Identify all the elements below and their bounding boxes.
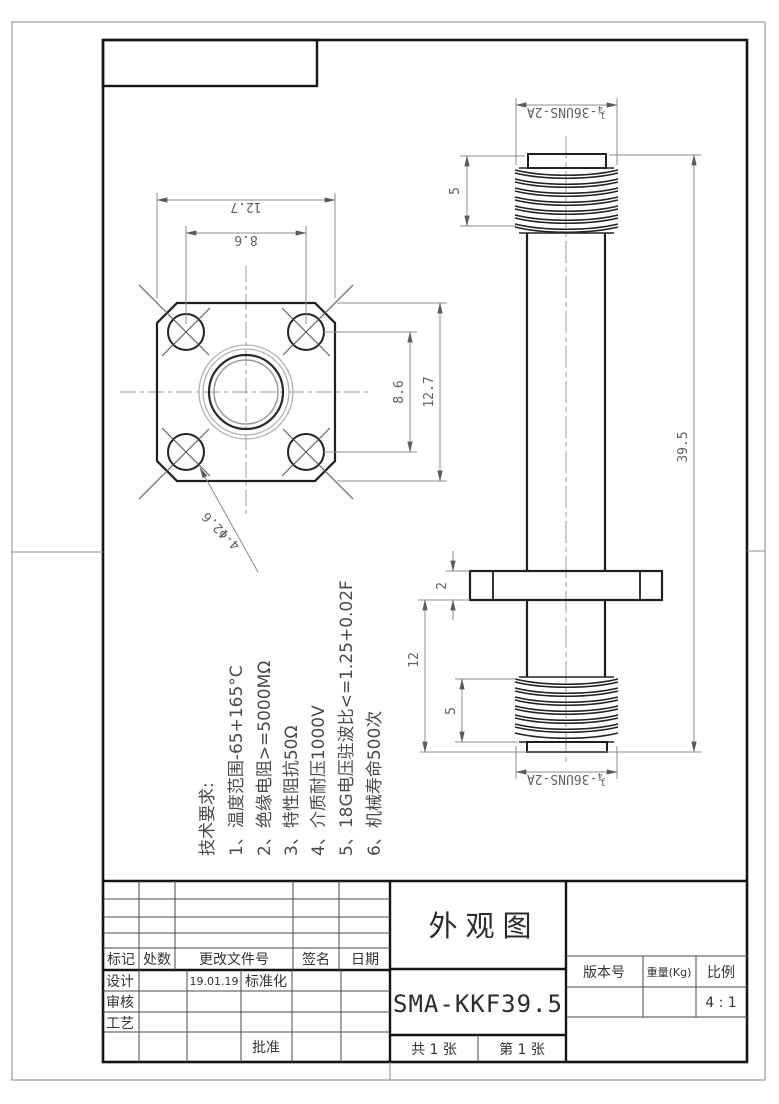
part-number: SMA-KKF39.5	[393, 990, 563, 1018]
title-block: 标记 处数 更改文件号 签名 日期 设计 19.01.19 标准化 审核 工艺 …	[103, 881, 747, 1062]
rev-col-count: 处数	[143, 952, 171, 968]
rev-col-doc: 更改文件号	[199, 952, 269, 968]
dim-hole-callout: 4-Φ2.6	[200, 509, 244, 553]
dim-overall-length: 39.5	[676, 431, 691, 462]
dim-thread-top-length: 5	[448, 187, 463, 195]
tech-req-item: 2、绝缘电阻>=5000MΩ	[255, 661, 275, 856]
bottom-cap	[527, 742, 607, 752]
front-view: 12.7 8.6 12.7 8.6 4-Φ2.6	[120, 193, 447, 572]
dim-thread-bottom-length: 5	[444, 707, 459, 715]
frame-corner-box	[103, 40, 317, 86]
design-date: 19.01.19	[190, 975, 239, 988]
dim-hole-span-x: 8.6	[234, 232, 257, 247]
version-label: 版本号	[583, 965, 625, 981]
dim-hole-span-y: 8.6	[392, 380, 407, 403]
approve-label: 批准	[252, 1040, 280, 1056]
scale-value: 4 : 1	[705, 995, 736, 1011]
dim-flange-width: 12.7	[230, 199, 261, 214]
scale-label: 比例	[707, 965, 735, 981]
dim-flange-height: 12.7	[422, 376, 437, 407]
tech-req-item: 4、介质耐压1000V	[309, 705, 329, 856]
sheet-total: 共 1 张	[411, 1042, 457, 1058]
tech-req-item: 5、18G电压驻波比<=1.25+0.02F	[337, 580, 357, 856]
weight-label: 重量(Kg)	[647, 965, 692, 979]
top-cap	[528, 154, 606, 168]
sheet-page: 第 1 张	[499, 1041, 545, 1058]
process-label: 工艺	[106, 1016, 134, 1032]
dim-thread-top: ¼-36UNS-2A	[527, 104, 605, 119]
rev-col-sign: 签名	[302, 951, 330, 968]
tech-req-heading: 技术要求:	[198, 782, 218, 856]
dim-flange-to-end: 12	[407, 652, 422, 668]
rev-col-mark: 标记	[107, 952, 135, 968]
tech-req-item: 3、特性阻抗50Ω	[282, 726, 302, 856]
sheet-frame	[12, 22, 765, 1080]
side-view: ¼-36UNS-2A 5 39.5 2 12 5 ¼-36UNS-2A	[407, 98, 701, 786]
dim-flange-thickness: 2	[435, 582, 450, 590]
rev-col-date: 日期	[351, 952, 379, 968]
drawing-sheet: 12.7 8.6 12.7 8.6 4-Φ2.6	[0, 0, 779, 1104]
tech-requirements: 技术要求: 1、温度范围-65+165°C 2、绝缘电阻>=5000MΩ 3、特…	[198, 580, 385, 856]
check-label: 审核	[106, 995, 134, 1011]
design-label: 设计	[106, 974, 134, 990]
drawing-canvas: 12.7 8.6 12.7 8.6 4-Φ2.6	[0, 0, 779, 1104]
tech-req-item: 6、机械寿命500次	[365, 711, 385, 856]
dim-thread-bottom: ¼-36UNS-2A	[527, 771, 605, 786]
tech-req-item: 1、温度范围-65+165°C	[227, 665, 247, 856]
standardization-label: 标准化	[245, 974, 287, 990]
drawing-title: 外观图	[428, 909, 539, 943]
